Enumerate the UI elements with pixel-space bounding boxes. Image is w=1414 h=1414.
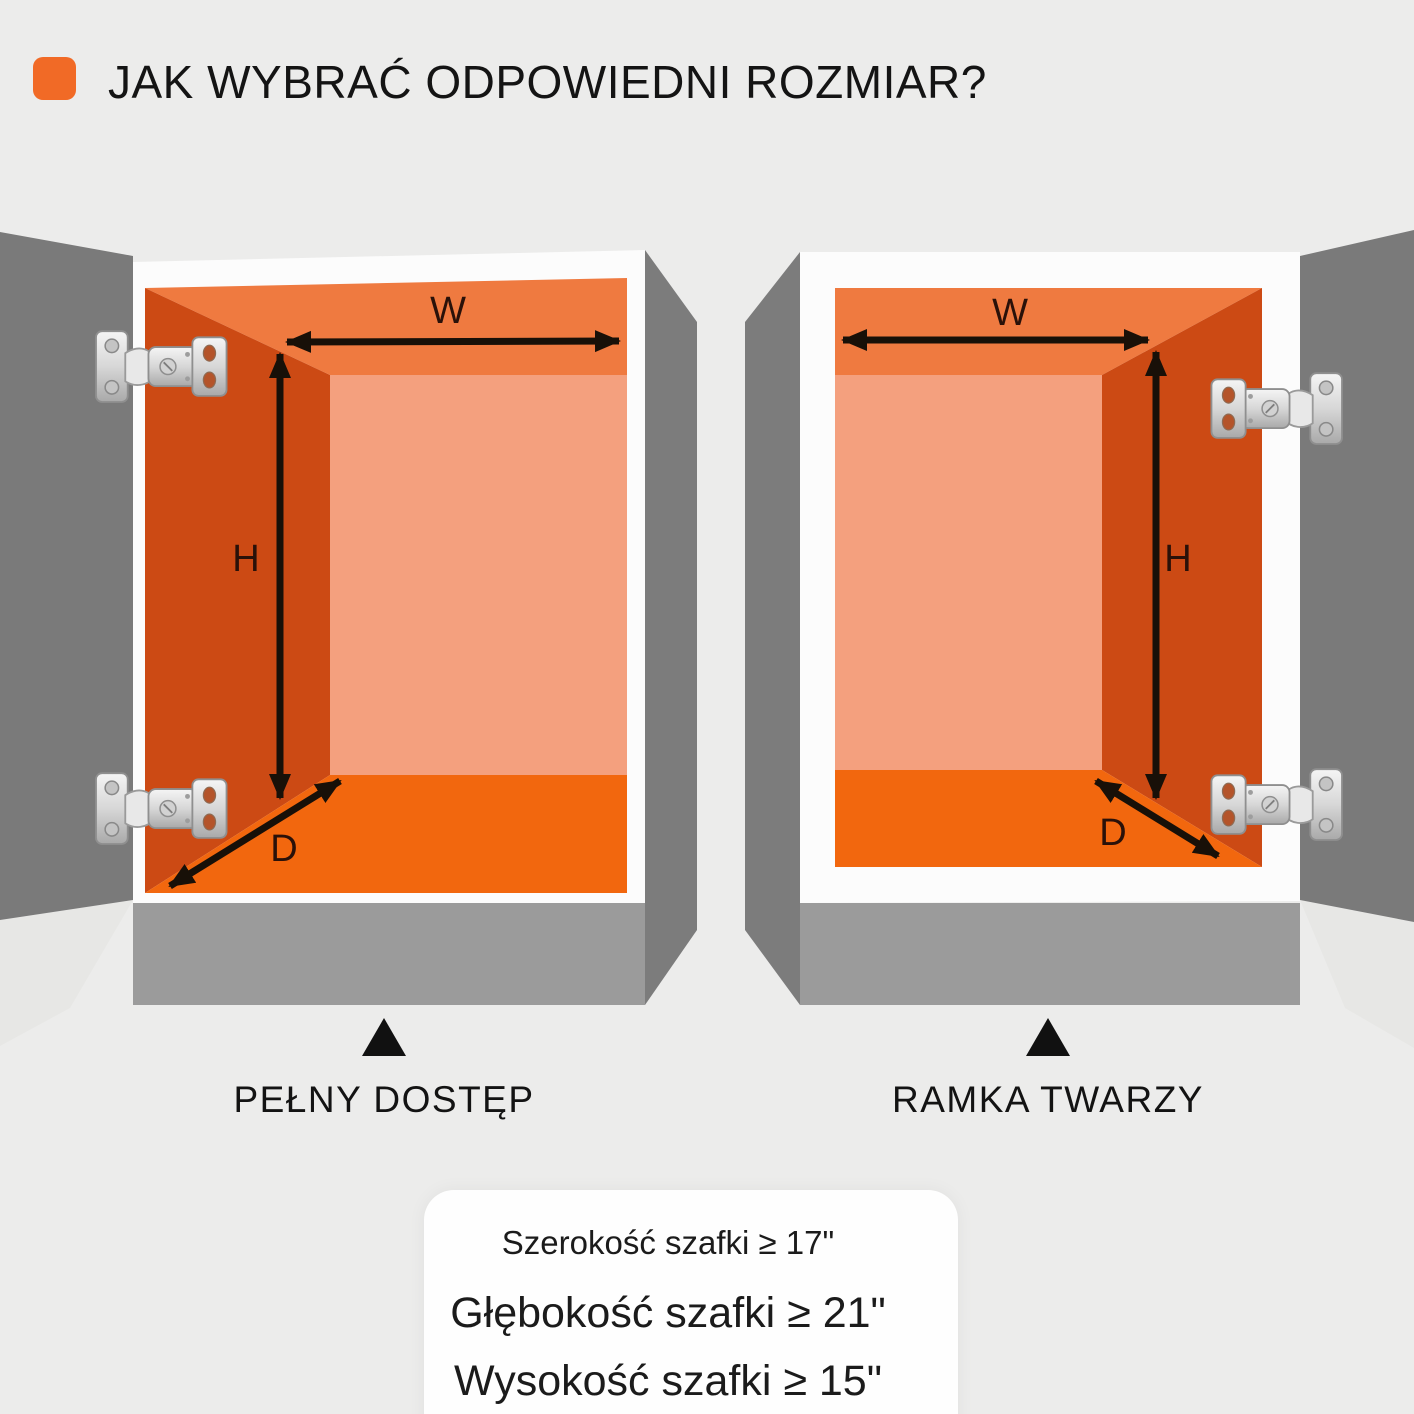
spec-height: Wysokość szafki ≥ 15" [424, 1357, 912, 1406]
interior-back-panel [835, 375, 1102, 770]
height-label: H [1164, 538, 1191, 580]
width-arrow [287, 341, 619, 342]
depth-label: D [1099, 812, 1126, 854]
up-triangle-icon [362, 1018, 406, 1056]
width-label: W [992, 292, 1028, 334]
cabinet-side-panel [745, 252, 800, 1005]
size-requirements-card: Szerokość szafki ≥ 17" Głębokość szafki … [424, 1190, 958, 1414]
spec-depth: Głębokość szafki ≥ 21" [424, 1289, 912, 1338]
interior-back-panel [330, 375, 627, 775]
depth-label: D [270, 828, 297, 870]
height-label: H [232, 538, 259, 580]
toe-kick-base [800, 903, 1300, 1005]
right-cabinet-caption: RAMKA TWARZY [892, 1079, 1204, 1120]
spec-width: Szerokość szafki ≥ 17" [424, 1224, 912, 1262]
left-cabinet-caption: PEŁNY DOSTĘP [233, 1079, 534, 1120]
up-triangle-icon [1026, 1018, 1070, 1056]
width-label: W [430, 290, 466, 332]
toe-kick-base [133, 903, 645, 1005]
door-floor-shadow [1300, 900, 1414, 1048]
right-cabinet: W H D RAMKA TWARZY [745, 230, 1414, 1120]
door-floor-shadow [0, 900, 133, 1046]
cabinet-side-panel [645, 250, 697, 1005]
infographic-canvas: JAK WYBRAĆ ODPOWIEDNI ROZMIAR? [0, 0, 1414, 1414]
left-cabinet: W H D PEŁNY DOSTĘP [0, 232, 697, 1120]
